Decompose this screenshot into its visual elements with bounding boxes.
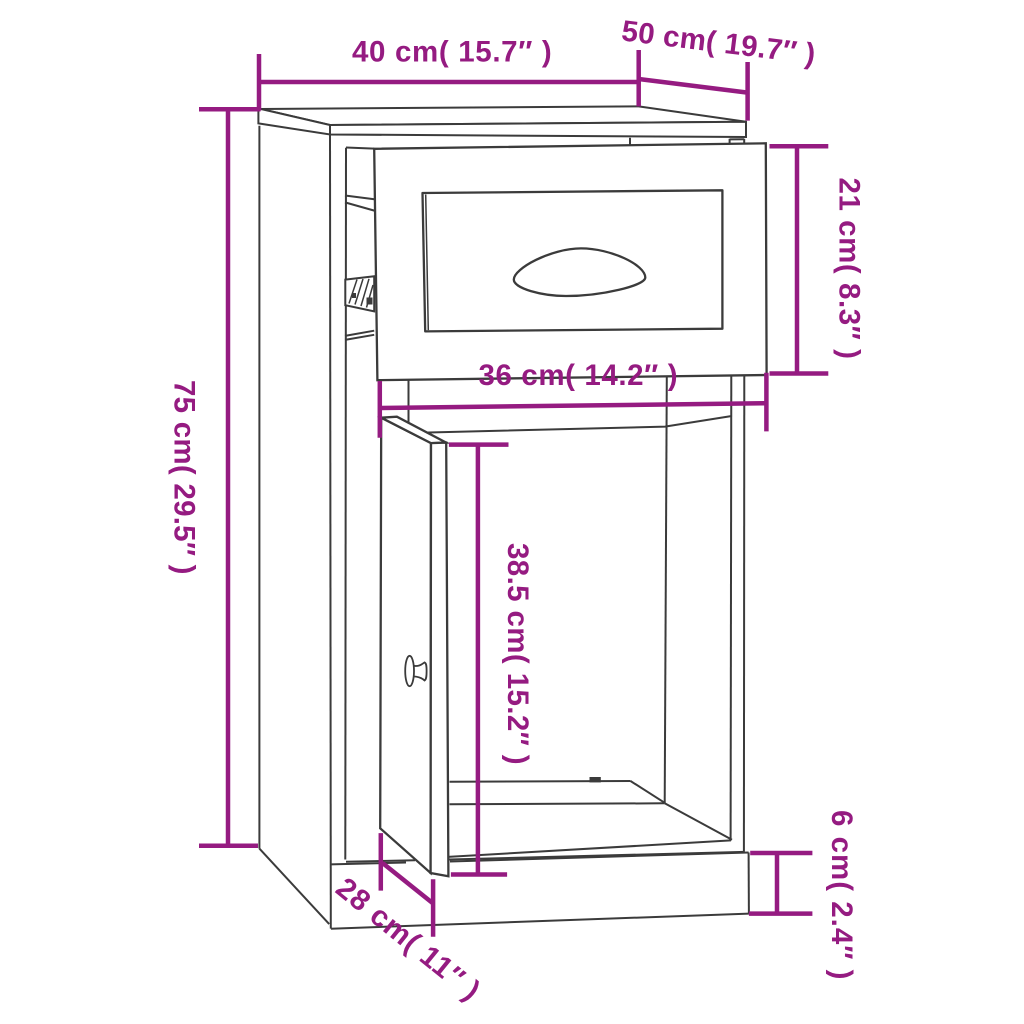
svg-text:36 cm( 14.2″ ): 36 cm( 14.2″ ) xyxy=(479,359,679,392)
svg-text:38.5 cm( 15.2″ ): 38.5 cm( 15.2″ ) xyxy=(501,543,534,765)
svg-text:75 cm( 29.5″ ): 75 cm( 29.5″ ) xyxy=(168,380,201,575)
svg-text:6 cm( 2.4″ ): 6 cm( 2.4″ ) xyxy=(825,810,858,980)
svg-text:21 cm( 8.3″ ): 21 cm( 8.3″ ) xyxy=(832,178,865,360)
svg-text:40 cm( 15.7″ ): 40 cm( 15.7″ ) xyxy=(352,35,552,68)
